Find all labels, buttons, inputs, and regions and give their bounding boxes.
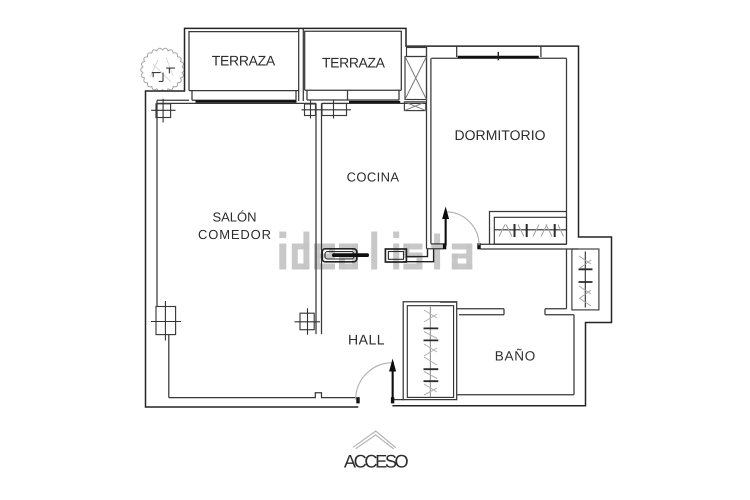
svg-text:SALÓN: SALÓN <box>213 209 257 224</box>
svg-text:HALL: HALL <box>348 332 385 348</box>
svg-text:COCINA: COCINA <box>347 170 400 185</box>
svg-text:TERRAZA: TERRAZA <box>322 54 386 70</box>
svg-text:BAÑO: BAÑO <box>495 349 536 364</box>
svg-text:ACCESO: ACCESO <box>344 451 409 471</box>
svg-text:TERRAZA: TERRAZA <box>212 53 276 69</box>
svg-text:COMEDOR: COMEDOR <box>198 227 271 242</box>
svg-text:DORMITORIO: DORMITORIO <box>455 127 546 143</box>
